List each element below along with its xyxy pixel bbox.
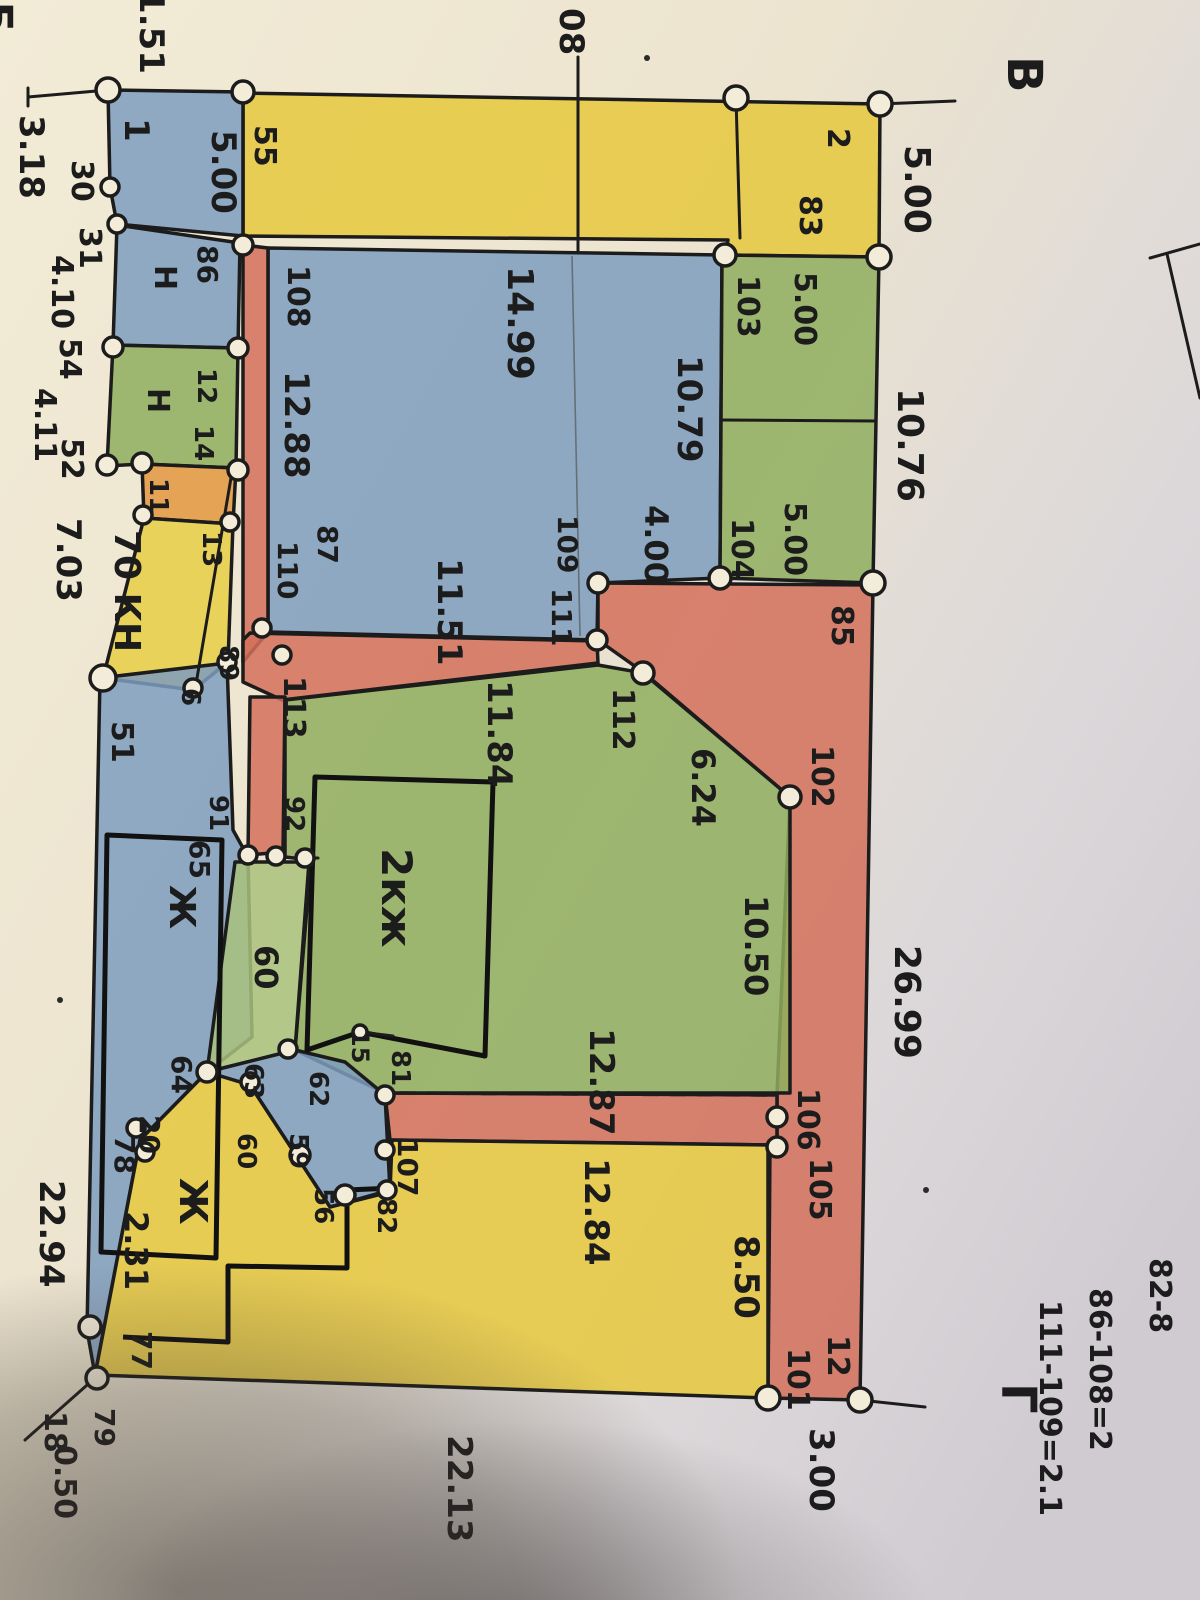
cadastral-plan-svg: ВГБ1.513.1830314.10544.11527.0322.9415.0… (0, 0, 1200, 1600)
survey-point (848, 1388, 872, 1412)
survey-point (253, 619, 271, 637)
label-pt-92: 92 (279, 796, 309, 832)
label-pt-12-bottom: 12 (820, 1335, 855, 1377)
survey-point (233, 235, 253, 255)
label-pt-78: 78 (108, 1135, 141, 1174)
label-pt-87: 87 (311, 525, 344, 564)
survey-point (228, 338, 248, 358)
label-letter-zh-2: Ж (171, 1178, 215, 1225)
label-pt-15: 15 (346, 1030, 374, 1063)
label-pt-107: 107 (391, 1138, 424, 1196)
label-pt-51: 51 (104, 721, 139, 763)
divider-green-103-104 (723, 420, 876, 421)
survey-point (587, 630, 607, 650)
survey-point (108, 215, 126, 233)
label-pt-91: 91 (203, 795, 233, 831)
region-red-strip-left (243, 245, 268, 662)
label-dim-26-99: 26.99 (886, 945, 927, 1059)
label-letter-v: В (996, 56, 1052, 93)
label-dim-12-88: 12.88 (276, 371, 316, 479)
survey-point (132, 453, 152, 473)
label-dim-11-84: 11.84 (479, 680, 519, 788)
label-dim-5-00-104: 5.00 (777, 502, 812, 576)
survey-point (103, 337, 123, 357)
region-red-band-bottom (385, 1093, 777, 1145)
label-letter-n-green: Н (140, 388, 175, 413)
label-dim-12-87: 12.87 (581, 1028, 621, 1136)
label-dim-5-00-top: 5.00 (896, 145, 937, 234)
survey-point (861, 571, 885, 595)
label-pt-54: 54 (52, 338, 87, 380)
label-pt-2: 2 (820, 128, 855, 149)
label-dim-3-18: 3.18 (11, 115, 51, 199)
label-pt-60: 60 (231, 1133, 261, 1169)
label-pt-106: 106 (790, 1088, 825, 1151)
survey-point (267, 847, 285, 865)
label-plot-60: 60 (247, 945, 285, 990)
label-note-1: 82-8 (1142, 1258, 1177, 1333)
label-pt-85: 85 (824, 605, 859, 647)
label-dim-10-79: 10.79 (669, 355, 709, 463)
survey-point (632, 662, 654, 684)
label-dim-10-50: 10.50 (737, 895, 775, 996)
label-dim-5-00-103: 5.00 (787, 272, 822, 346)
survey-point (239, 846, 257, 864)
survey-point (724, 86, 748, 110)
label-mark-08: 08 (551, 8, 591, 55)
label-pt-82: 82 (371, 1198, 401, 1234)
label-pt-13: 13 (196, 531, 226, 567)
label-dim-5-00-left: 5.00 (203, 130, 243, 214)
label-pt-64: 64 (165, 1055, 198, 1094)
label-dim-4-10: 4.10 (44, 255, 79, 329)
survey-point (97, 455, 117, 475)
label-dim-4-00: 4.00 (637, 505, 675, 584)
label-pt-86: 86 (191, 245, 224, 284)
survey-point (197, 1062, 217, 1082)
survey-point (588, 573, 608, 593)
label-pt-89: 89 (213, 645, 243, 681)
label-plot-70-kn: 70 КН (106, 530, 147, 652)
label-building-2kzh: 2кж (372, 848, 421, 948)
survey-point (96, 78, 120, 102)
label-pt-63: 63 (238, 1063, 268, 1099)
survey-point (779, 786, 801, 808)
label-letter-b-fragment: Б (0, 2, 20, 33)
label-pt-102: 102 (804, 745, 839, 808)
label-pt-109: 109 (551, 515, 584, 573)
label-pt-113: 113 (276, 676, 311, 739)
label-pt-59: 59 (283, 1133, 313, 1169)
survey-point (221, 513, 239, 531)
label-pt-111: 111 (545, 588, 578, 646)
label-dim-11-51: 11.51 (429, 558, 469, 666)
label-dim-14-99: 14.99 (499, 266, 540, 380)
label-pt-1: 1 (116, 118, 156, 142)
survey-point (767, 1107, 787, 1127)
label-dim-7-03: 7.03 (48, 518, 88, 602)
survey-point (714, 244, 736, 266)
label-pt-6: 6 (175, 688, 205, 706)
label-pt-104: 104 (724, 518, 759, 581)
survey-point (767, 1137, 787, 1157)
survey-point (273, 646, 291, 664)
label-note-3: 111-109=2.1 (1032, 1300, 1067, 1516)
label-pt-65: 65 (183, 840, 216, 879)
survey-point (756, 1386, 780, 1410)
label-pt-11: 11 (143, 478, 173, 514)
label-dim-10-76: 10.76 (889, 388, 930, 502)
label-pt-52: 52 (54, 438, 89, 480)
label-pt-14: 14 (188, 425, 218, 461)
label-pt-55: 55 (247, 125, 282, 167)
label-letter-n-blue: Н (147, 265, 182, 290)
label-pt-110: 110 (271, 541, 304, 599)
region-yellow-top-strip (243, 93, 880, 257)
label-dim-12-84: 12.84 (576, 1158, 616, 1266)
label-pt-62: 62 (303, 1071, 333, 1107)
label-note-2: 86-108=2 (1082, 1288, 1117, 1451)
survey-point (296, 849, 314, 867)
label-pt-105: 105 (802, 1158, 837, 1221)
survey-point (867, 245, 891, 269)
survey-point (868, 92, 892, 116)
survey-point (90, 665, 116, 691)
label-pt-81: 81 (385, 1050, 415, 1086)
label-pt-112: 112 (605, 688, 640, 751)
survey-point (279, 1040, 297, 1058)
label-pt-12: 12 (191, 368, 221, 404)
label-pt-103: 103 (730, 275, 765, 338)
label-pt-101: 101 (780, 1348, 815, 1411)
survey-point (232, 81, 254, 103)
label-pt-30: 30 (64, 160, 99, 202)
label-dim-6-24: 6.24 (684, 748, 722, 827)
survey-point (101, 178, 119, 196)
survey-point (376, 1086, 394, 1104)
label-dim-8-50: 8.50 (726, 1235, 766, 1319)
label-pt-56: 56 (308, 1188, 338, 1224)
label-dim-1-51: 1.51 (131, 0, 171, 74)
label-pt-83: 83 (792, 195, 827, 237)
survey-point (228, 460, 248, 480)
photo-of-plan: ВГБ1.513.1830314.10544.11527.0322.9415.0… (0, 0, 1200, 1600)
label-letter-zh-1: Ж (161, 885, 202, 929)
label-pt-108: 108 (280, 265, 315, 328)
